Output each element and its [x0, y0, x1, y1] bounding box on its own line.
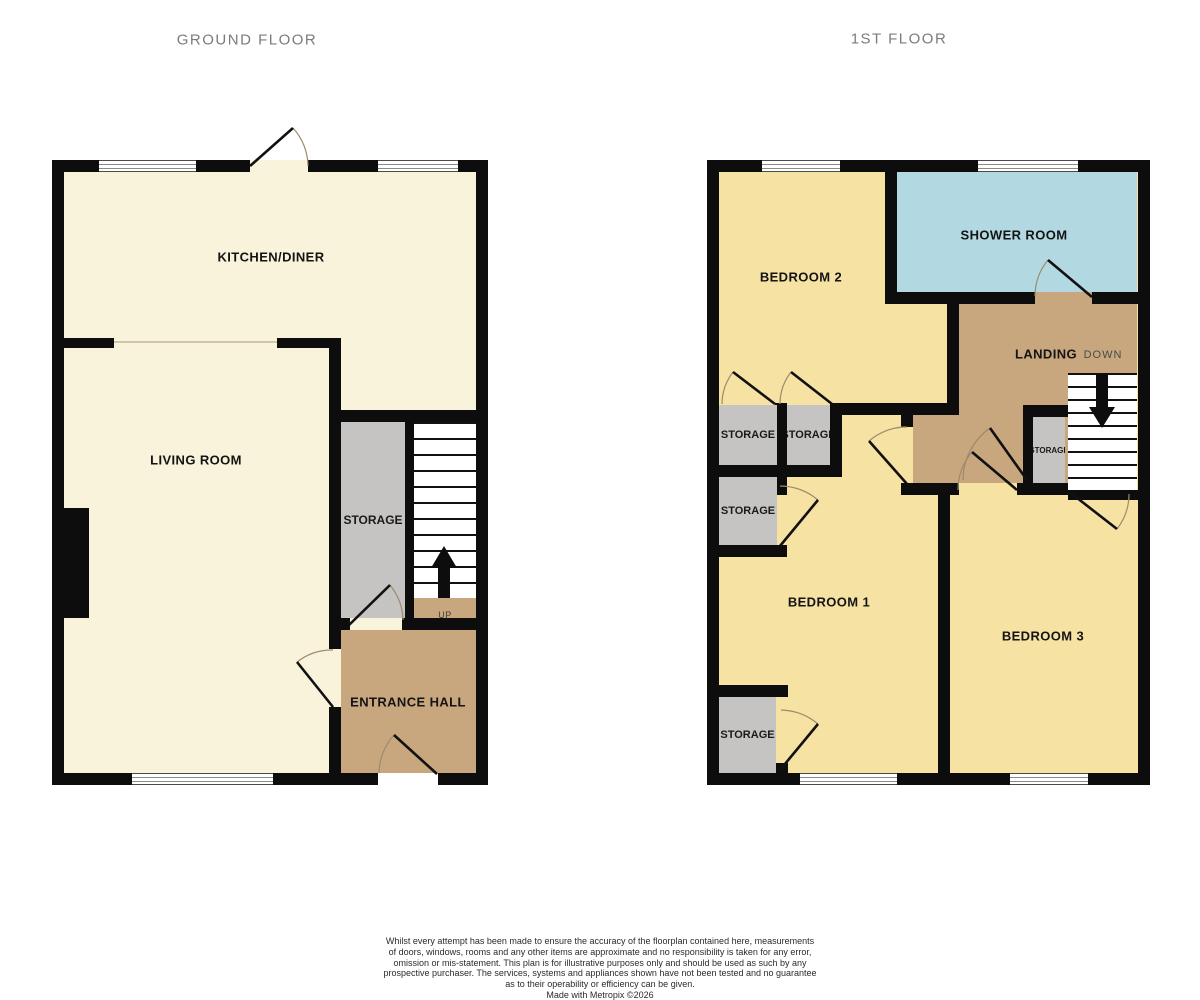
storage-room: STORAGE — [719, 697, 776, 773]
wall — [341, 618, 350, 630]
wall — [719, 545, 787, 557]
storage-label: STORAGE — [721, 429, 775, 441]
storage-room: STORAGE — [719, 477, 777, 545]
storage-label: STORAGE — [1033, 446, 1065, 455]
ground-floor-title: GROUND FLOOR — [177, 32, 318, 49]
window — [800, 773, 897, 785]
wall — [776, 763, 788, 773]
window — [378, 160, 458, 172]
disclaimer-line: Whilst every attempt has been made to en… — [0, 936, 1200, 947]
kitchen-diner-label: KITCHEN/DINER — [217, 250, 324, 265]
wall — [777, 465, 787, 495]
floorplan-canvas: GROUND FLOOR 1ST FLOOR STORAGE UP KITCHE… — [0, 0, 1200, 1000]
wall — [901, 483, 959, 495]
door-opening — [250, 160, 308, 172]
wall — [719, 685, 788, 697]
disclaimer: Whilst every attempt has been made to en… — [0, 936, 1200, 1000]
wall — [1068, 490, 1138, 500]
wall — [938, 483, 950, 773]
wall — [402, 618, 476, 630]
storage-room: STORAGE — [1033, 417, 1065, 483]
stairs-down — [1068, 373, 1137, 490]
wall — [830, 403, 959, 415]
bedroom-2-label: BEDROOM 2 — [760, 270, 842, 285]
disclaimer-line: of doors, windows, rooms and any other i… — [0, 947, 1200, 958]
disclaimer-line: prospective purchaser. The services, sys… — [0, 968, 1200, 979]
down-label: DOWN — [1084, 349, 1123, 361]
window — [762, 160, 840, 172]
landing — [959, 304, 1137, 373]
shower-room-label: SHOWER ROOM — [961, 228, 1068, 243]
wall — [947, 292, 959, 415]
storage-label: STORAGE — [720, 729, 774, 741]
disclaimer-line: omission or mis-statement. This plan is … — [0, 958, 1200, 969]
wall — [1092, 292, 1138, 304]
first-floor-title: 1ST FLOOR — [851, 31, 948, 48]
wall — [830, 403, 842, 467]
wall — [901, 415, 913, 427]
storage-label: STORAGE — [721, 505, 775, 517]
wall — [341, 410, 476, 422]
wall — [1023, 405, 1068, 417]
chimney-breast — [63, 508, 89, 618]
bedroom-3-label: BEDROOM 3 — [1002, 629, 1084, 644]
made-with-line: Made with Metropix ©2026 — [0, 990, 1200, 1000]
ground-storage-room: STORAGE — [341, 422, 405, 618]
window — [978, 160, 1078, 172]
bedroom-1-label: BEDROOM 1 — [788, 595, 870, 610]
shower-door-opening — [1035, 292, 1092, 304]
wall — [885, 172, 897, 304]
wall — [885, 292, 1035, 304]
storage-label: STORAGE — [787, 429, 830, 441]
front-door-opening — [378, 773, 438, 785]
wall — [405, 422, 414, 630]
storage-room: STORAGE — [787, 405, 830, 465]
window — [1010, 773, 1088, 785]
window — [99, 160, 196, 172]
ground-storage-label: STORAGE — [343, 513, 402, 527]
disclaimer-line: as to their operability or efficiency ca… — [0, 979, 1200, 990]
living-room-label: LIVING ROOM — [150, 453, 242, 468]
wall — [329, 338, 341, 649]
landing-label: LANDING — [1015, 347, 1077, 362]
storage-room: STORAGE — [719, 405, 777, 465]
window — [132, 773, 273, 785]
stairs-up — [414, 422, 476, 598]
wall — [1023, 405, 1033, 493]
wall — [64, 338, 114, 348]
landing — [913, 415, 959, 483]
entrance-hall-label: ENTRANCE HALL — [350, 695, 466, 710]
wall — [329, 707, 341, 773]
